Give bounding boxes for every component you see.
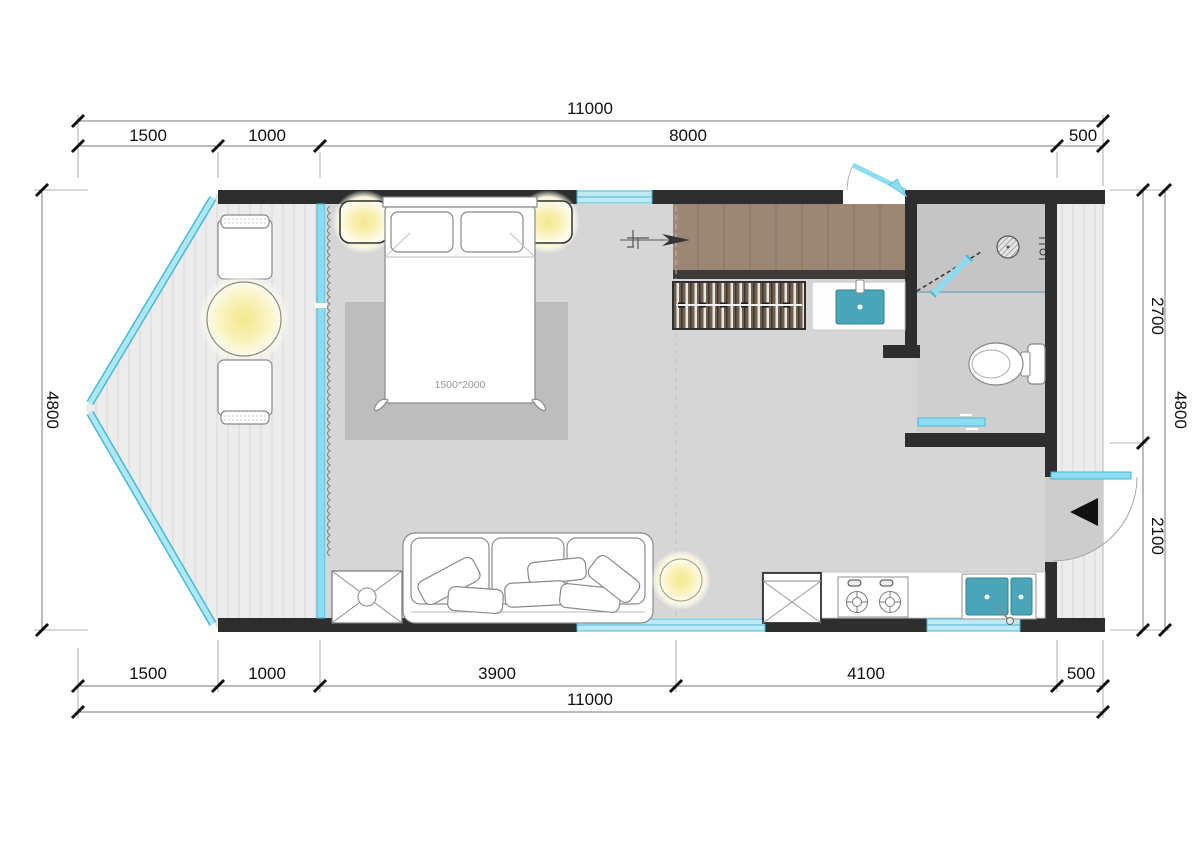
- deck-chair-bottom: [218, 360, 272, 424]
- deck-front: [85, 190, 317, 632]
- stove-knob: [848, 580, 861, 586]
- wardrobe-hanging-rack: [673, 282, 805, 329]
- dim-top-seg-3: 500: [1069, 126, 1097, 145]
- dim-right-seg-1: 2100: [1148, 517, 1167, 555]
- pillow-left: [391, 212, 453, 252]
- dim-top-seg-2: 8000: [669, 126, 707, 145]
- floor-plan-drawing: 1500*2000: [0, 0, 1200, 843]
- entry-door: [1045, 472, 1137, 562]
- stove-knob: [880, 580, 893, 586]
- dim-bottom-total: 11000: [567, 690, 613, 709]
- window-top: [577, 191, 652, 203]
- dim-left-total: 4800: [43, 391, 62, 429]
- cooktop-stove: [838, 577, 908, 617]
- dim-bottom-seg-0: 1500: [129, 664, 167, 683]
- dim-top-total: 11000: [567, 99, 613, 118]
- dim-bottom-seg-2: 3900: [478, 664, 516, 683]
- refrigerator: [763, 573, 821, 623]
- dim-right-seg-0: 2700: [1148, 297, 1167, 335]
- toilet: [969, 343, 1045, 385]
- sofa-pillow: [504, 580, 567, 607]
- dim-bottom-seg-4: 500: [1067, 664, 1095, 683]
- side-table: [332, 571, 402, 623]
- kitchen-sink: [962, 574, 1036, 625]
- floor-plan-page: 1500*2000: [0, 0, 1200, 843]
- dim-bottom-seg-3: 4100: [847, 664, 885, 683]
- shower-drain: [997, 236, 1019, 258]
- double-bed: 1500*2000: [375, 197, 546, 411]
- dim-right-total: 4800: [1171, 391, 1190, 429]
- dim-top-seg-0: 1500: [129, 126, 167, 145]
- glass-wall: [315, 204, 327, 618]
- deck-table-lamp: [198, 273, 290, 365]
- dim-top-seg-1: 1000: [248, 126, 286, 145]
- deck-chair-top: [218, 215, 272, 279]
- floor-lamp: [651, 550, 711, 610]
- closet-wood-floor: [673, 204, 905, 279]
- pillow-right: [461, 212, 523, 252]
- bed-size-label: 1500*2000: [435, 379, 486, 391]
- vanity-basin: [812, 280, 905, 330]
- top-exterior-door: [847, 165, 907, 197]
- sofa-pillow: [447, 586, 504, 614]
- vanity-faucet: [856, 280, 864, 293]
- bathroom-floor: [917, 204, 1045, 447]
- dim-bottom-seg-1: 1000: [248, 664, 286, 683]
- sofa: [403, 533, 653, 623]
